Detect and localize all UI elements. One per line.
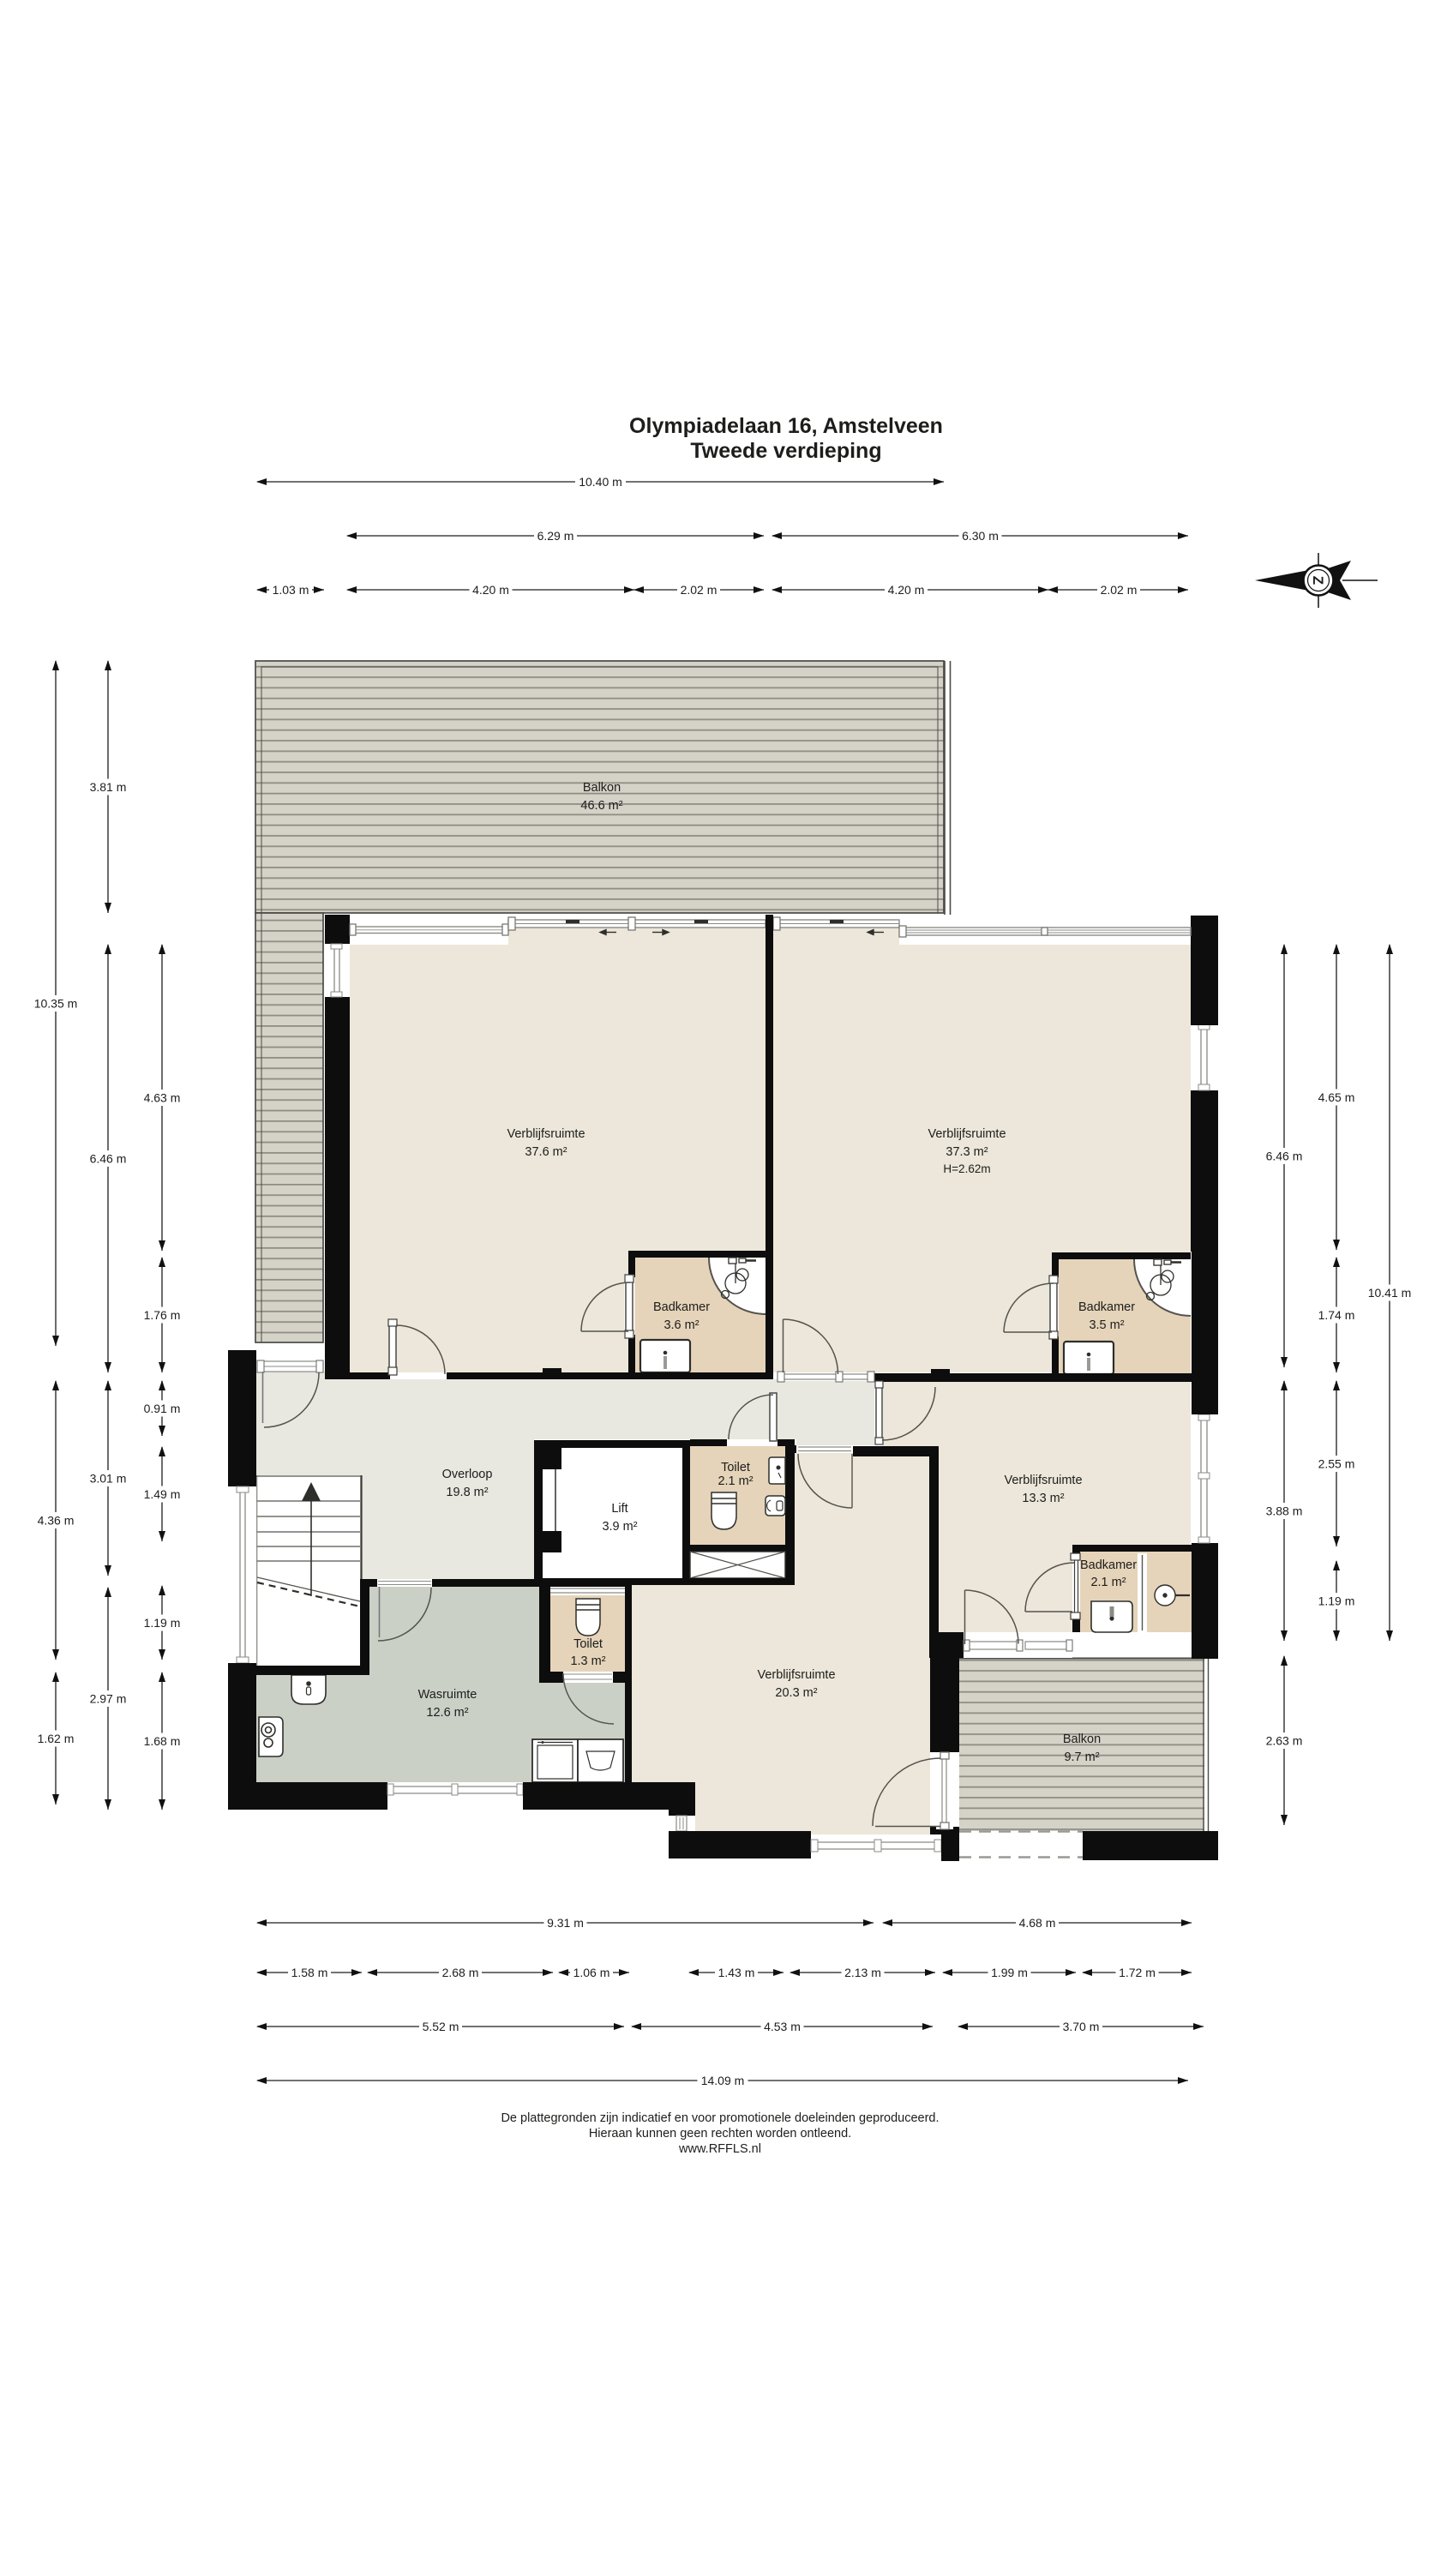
svg-text:12.6 m²: 12.6 m²: [426, 1706, 468, 1720]
svg-text:3.5 m²: 3.5 m²: [1089, 1318, 1124, 1332]
svg-text:Hieraan kunnen geen rechten wo: Hieraan kunnen geen rechten worden ontle…: [589, 2127, 851, 2141]
svg-text:3.70 m: 3.70 m: [1063, 2020, 1100, 2033]
svg-text:Badkamer: Badkamer: [653, 1300, 710, 1314]
svg-text:2.63 m: 2.63 m: [1266, 1734, 1303, 1748]
svg-text:4.20 m: 4.20 m: [888, 583, 925, 597]
svg-text:1.19 m: 1.19 m: [1318, 1594, 1355, 1608]
svg-text:19.8 m²: 19.8 m²: [446, 1486, 488, 1499]
svg-text:1.72 m: 1.72 m: [1119, 1966, 1156, 1979]
svg-text:1.43 m: 1.43 m: [718, 1966, 755, 1979]
svg-text:0.91 m: 0.91 m: [144, 1402, 181, 1415]
svg-text:4.53 m: 4.53 m: [764, 2020, 801, 2033]
svg-text:4.36 m: 4.36 m: [38, 1514, 75, 1528]
svg-text:Wasruimte: Wasruimte: [418, 1688, 477, 1702]
svg-text:2.55 m: 2.55 m: [1318, 1457, 1355, 1471]
svg-text:6.30 m: 6.30 m: [962, 529, 999, 543]
svg-text:Badkamer: Badkamer: [1080, 1558, 1137, 1572]
svg-text:1.19 m: 1.19 m: [144, 1616, 181, 1630]
svg-text:2.1 m²: 2.1 m²: [1090, 1576, 1126, 1589]
svg-text:1.06 m: 1.06 m: [573, 1966, 610, 1979]
svg-text:H=2.62m: H=2.62m: [943, 1162, 990, 1175]
svg-text:9.31 m: 9.31 m: [547, 1916, 584, 1930]
svg-text:3.01 m: 3.01 m: [90, 1472, 127, 1486]
svg-text:Verblijfsruimte: Verblijfsruimte: [928, 1127, 1006, 1141]
svg-text:Toilet: Toilet: [721, 1461, 750, 1474]
svg-text:1.62 m: 1.62 m: [38, 1732, 75, 1745]
svg-text:4.65 m: 4.65 m: [1318, 1090, 1355, 1104]
svg-text:Badkamer: Badkamer: [1078, 1300, 1135, 1314]
svg-text:Balkon: Balkon: [1063, 1732, 1101, 1746]
svg-text:Tweede verdieping: Tweede verdieping: [690, 439, 881, 463]
svg-text:1.49 m: 1.49 m: [144, 1487, 181, 1501]
svg-text:5.52 m: 5.52 m: [423, 2020, 459, 2033]
svg-text:Verblijfsruimte: Verblijfsruimte: [757, 1668, 835, 1682]
svg-text:1.99 m: 1.99 m: [991, 1966, 1028, 1979]
svg-text:20.3 m²: 20.3 m²: [775, 1686, 817, 1700]
svg-text:1.74 m: 1.74 m: [1318, 1308, 1355, 1322]
svg-text:13.3 m²: 13.3 m²: [1022, 1492, 1064, 1505]
svg-text:37.3 m²: 37.3 m²: [946, 1145, 988, 1159]
svg-text:3.81 m: 3.81 m: [90, 780, 127, 794]
svg-text:4.68 m: 4.68 m: [1019, 1916, 1056, 1930]
svg-text:6.46 m: 6.46 m: [90, 1152, 127, 1166]
svg-text:De plattegronden zijn indicati: De plattegronden zijn indicatief en voor…: [501, 2111, 939, 2125]
svg-text:6.29 m: 6.29 m: [537, 529, 574, 543]
svg-text:3.9 m²: 3.9 m²: [602, 1520, 637, 1534]
svg-text:www.RFFLS.nl: www.RFFLS.nl: [678, 2142, 761, 2156]
svg-text:1.58 m: 1.58 m: [291, 1966, 328, 1979]
svg-text:10.35 m: 10.35 m: [34, 997, 78, 1011]
svg-text:37.6 m²: 37.6 m²: [525, 1145, 567, 1159]
svg-text:2.1 m²: 2.1 m²: [717, 1474, 753, 1488]
svg-text:1.76 m: 1.76 m: [144, 1308, 181, 1322]
svg-text:2.13 m: 2.13 m: [844, 1966, 881, 1979]
svg-text:2.02 m: 2.02 m: [1101, 583, 1138, 597]
svg-text:2.68 m: 2.68 m: [442, 1966, 479, 1979]
svg-text:4.20 m: 4.20 m: [472, 583, 509, 597]
svg-text:2.97 m: 2.97 m: [90, 1692, 127, 1706]
svg-text:10.40 m: 10.40 m: [579, 475, 622, 489]
svg-text:Toilet: Toilet: [573, 1637, 603, 1651]
svg-text:6.46 m: 6.46 m: [1266, 1150, 1303, 1163]
svg-text:Overloop: Overloop: [442, 1468, 493, 1481]
svg-text:46.6 m²: 46.6 m²: [580, 799, 622, 813]
svg-text:4.63 m: 4.63 m: [144, 1091, 181, 1105]
svg-text:3.6 m²: 3.6 m²: [663, 1318, 699, 1332]
svg-text:9.7 m²: 9.7 m²: [1064, 1750, 1099, 1764]
svg-text:1.03 m: 1.03 m: [273, 583, 309, 597]
svg-text:Balkon: Balkon: [583, 781, 621, 795]
svg-text:Lift: Lift: [611, 1502, 627, 1516]
svg-text:2.02 m: 2.02 m: [681, 583, 717, 597]
svg-text:3.88 m: 3.88 m: [1266, 1504, 1303, 1518]
svg-text:Verblijfsruimte: Verblijfsruimte: [1004, 1474, 1082, 1487]
svg-text:1.68 m: 1.68 m: [144, 1734, 181, 1748]
svg-text:Verblijfsruimte: Verblijfsruimte: [507, 1127, 585, 1141]
svg-text:10.41 m: 10.41 m: [1368, 1286, 1412, 1300]
svg-text:Olympiadelaan 16, Amstelveen: Olympiadelaan 16, Amstelveen: [629, 414, 943, 438]
svg-text:1.3 m²: 1.3 m²: [570, 1654, 605, 1668]
svg-text:Z: Z: [1310, 576, 1326, 585]
svg-text:14.09 m: 14.09 m: [701, 2074, 745, 2087]
